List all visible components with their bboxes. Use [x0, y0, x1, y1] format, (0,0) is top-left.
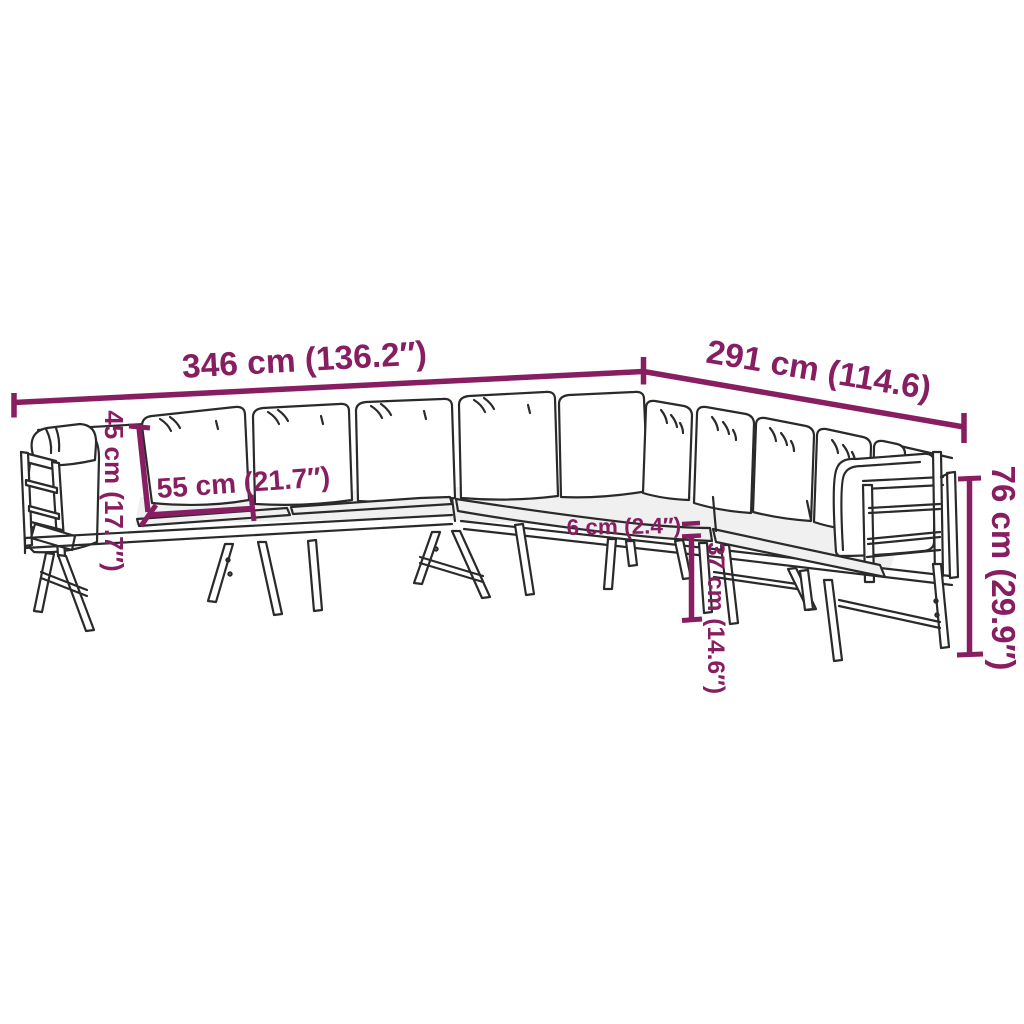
svg-text:37 cm (14.6″): 37 cm (14.6″) [702, 542, 729, 694]
svg-text:45 cm (17.7″): 45 cm (17.7″) [99, 410, 129, 571]
svg-text:6 cm (2.4″): 6 cm (2.4″) [566, 513, 681, 540]
svg-text:76 cm (29.9″): 76 cm (29.9″) [985, 466, 1022, 671]
